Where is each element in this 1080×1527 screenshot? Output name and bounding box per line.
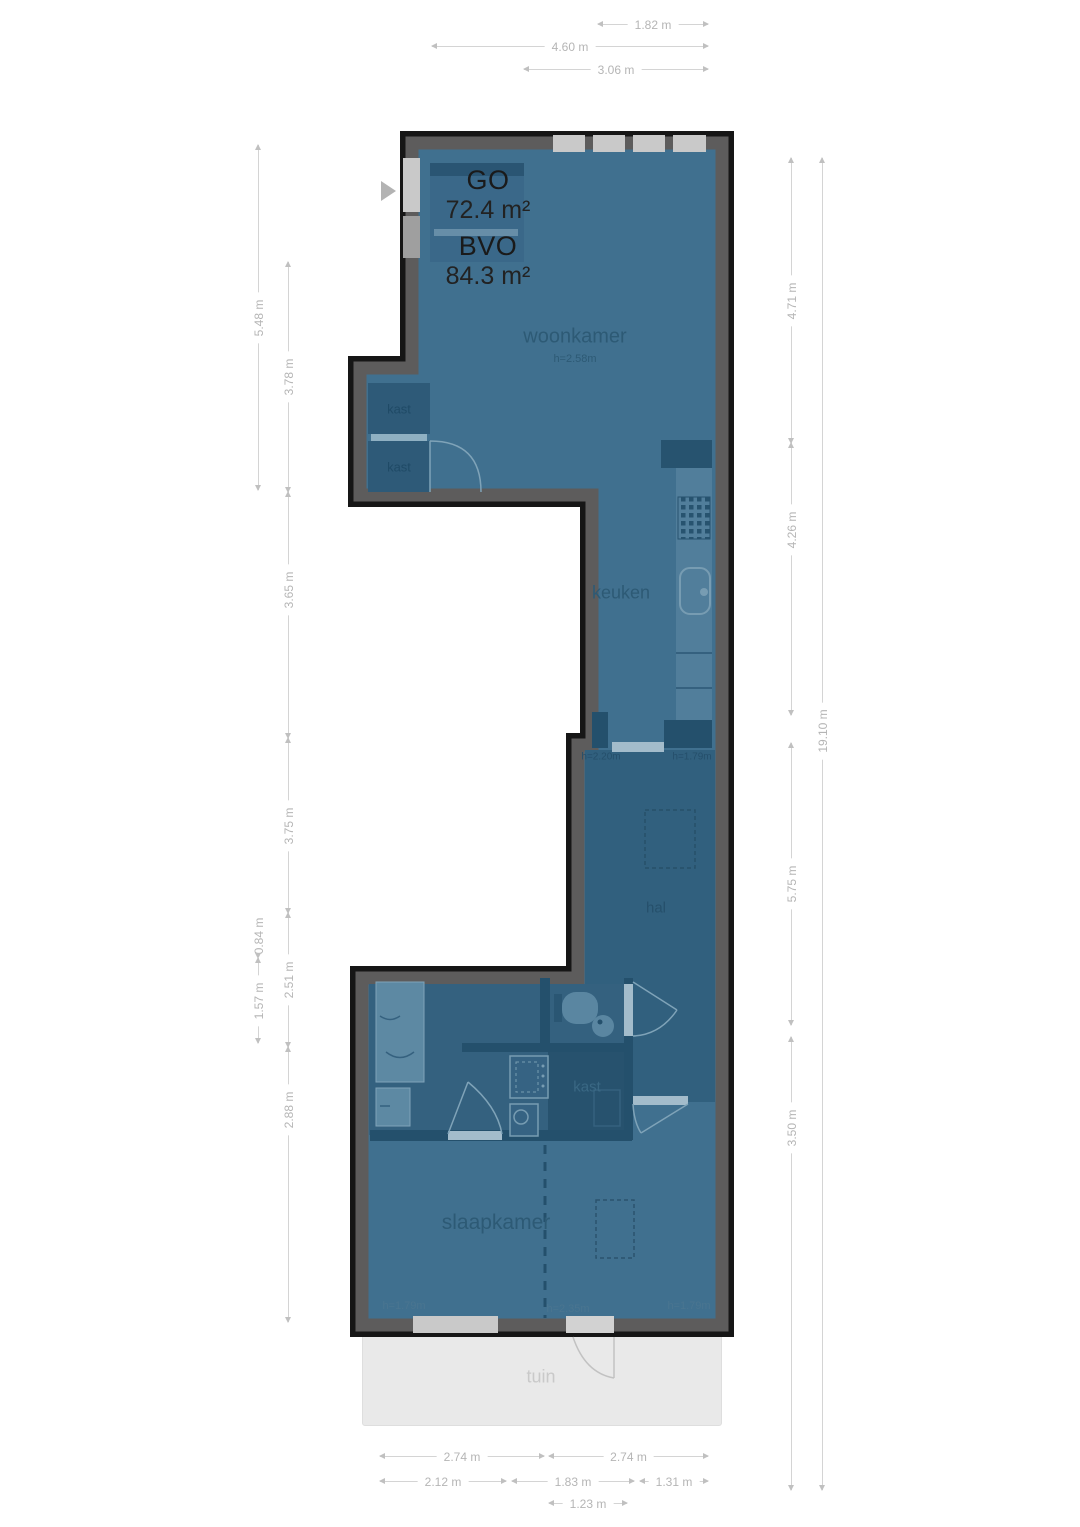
floorplan-canvas: GO 72.4 m² BVO 84.3 m² woonkamer h=2.58m…	[0, 0, 1080, 1527]
dim-right-outer-1: 19.10 m	[822, 158, 823, 1490]
dim-left-outer-1: 5.48 m	[258, 145, 259, 490]
dim-left-inner-1: 3.78 m	[288, 262, 289, 492]
dim-bottom-4: 1.83 m	[512, 1481, 634, 1482]
label-kast-upper: kast	[387, 402, 411, 417]
hmark-slaap-left: h=1.79m	[382, 1300, 425, 1312]
window-top-3	[633, 135, 665, 152]
dim-left-inner-2: 3.65 m	[288, 492, 289, 738]
kast-shelf	[371, 434, 427, 441]
label-slaapkamer: slaapkamer	[442, 1211, 551, 1235]
dim-bottom-2: 2.74 m	[549, 1456, 708, 1457]
hmark-slaap-right: h=1.79m	[667, 1300, 710, 1312]
toilet-bowl	[562, 992, 598, 1024]
toilet-tank	[554, 994, 562, 1022]
door-bottom-tuin	[566, 1316, 614, 1333]
label-woonkamer-height: h=2.58m	[553, 353, 596, 365]
dim-left-inner-4: 2.51 m	[288, 913, 289, 1047]
door-tuin	[573, 1337, 614, 1378]
hmark-keuken-left: h=2.20m	[581, 752, 620, 763]
label-kast-lower: kast	[387, 460, 411, 475]
dim-top-3: 3.06 m	[524, 69, 708, 70]
dim-left-inner-5: 2.88 m	[288, 1047, 289, 1322]
bvo-value: 84.3 m²	[398, 261, 578, 291]
hmark-slaap-mid: h=2.35m	[546, 1303, 589, 1315]
entrance-arrow-icon	[381, 181, 396, 201]
bvo-label: BVO	[398, 232, 578, 261]
window-top-2	[593, 135, 625, 152]
shower	[376, 982, 424, 1082]
stove	[678, 497, 710, 539]
dim-right-inner-4: 3.50 m	[791, 1037, 792, 1490]
dim-bottom-5: 1.31 m	[640, 1481, 708, 1482]
go-label: GO	[398, 166, 578, 195]
dim-right-inner-2: 4.26 m	[791, 443, 792, 715]
dim-left-outer-3: 1.57 m	[258, 958, 259, 1043]
dim-top-1: 1.82 m	[598, 24, 708, 25]
go-value: 72.4 m²	[398, 195, 578, 225]
area-summary: GO 72.4 m² BVO 84.3 m²	[398, 166, 578, 291]
faucet	[700, 588, 708, 596]
label-tuin: tuin	[526, 1367, 555, 1388]
hmark-keuken-right: h=1.79m	[672, 752, 711, 763]
dim-bottom-1: 2.74 m	[380, 1456, 544, 1457]
kitchen-cabinet-top	[661, 440, 712, 468]
dim-left-outer-2: 0.84 m	[258, 913, 259, 958]
label-keuken: keuken	[592, 583, 650, 604]
dim-bottom-3: 2.12 m	[380, 1481, 506, 1482]
counter-end-block	[664, 720, 712, 748]
wall-stub	[592, 712, 608, 748]
window-bottom-1	[413, 1316, 498, 1333]
dim-top-2: 4.60 m	[432, 46, 708, 47]
dim-right-inner-3: 5.75 m	[791, 743, 792, 1025]
toilet-sink	[592, 1015, 614, 1037]
dim-left-inner-3: 3.75 m	[288, 738, 289, 913]
dim-right-inner-1: 4.71 m	[791, 158, 792, 443]
window-top-1	[553, 135, 585, 152]
label-hal: hal	[646, 900, 666, 917]
bath-cabinet	[376, 1088, 410, 1126]
label-kast-hal: kast	[573, 1079, 601, 1096]
label-woonkamer: woonkamer	[523, 326, 626, 349]
dim-bottom-6: 1.23 m	[549, 1503, 627, 1504]
window-top-4	[673, 135, 706, 152]
